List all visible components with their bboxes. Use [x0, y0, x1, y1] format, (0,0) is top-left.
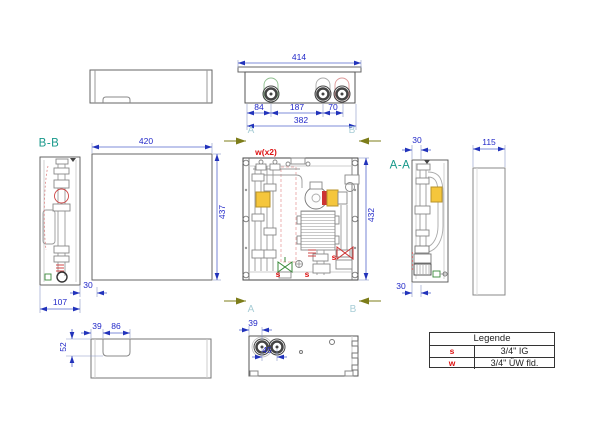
section-label-bb: B-B [39, 138, 60, 150]
dim-bb-back: 30 [83, 281, 92, 290]
dim-aa-bottom: 30 [396, 282, 405, 291]
dim-center-height: 432 [367, 208, 376, 222]
drawing-canvas: 414 84 187 70 382 A B A B 420 437 B-B 30… [0, 0, 600, 424]
port-label-s-2: s [305, 270, 310, 279]
dim-top-left: 84 [254, 103, 263, 112]
dim-bb-depth: 107 [53, 298, 67, 307]
section-aa-view [412, 160, 448, 282]
dim-base-offset: 39 [248, 319, 257, 328]
dim-top-right: 70 [328, 103, 337, 112]
dim-cover-depth: 52 [59, 342, 68, 351]
front-cover-view [92, 154, 212, 280]
unit-front-view [243, 158, 359, 280]
cut-letter-b-top: B [349, 126, 356, 136]
cut-letter-b-bottom: B [350, 305, 357, 315]
dim-aa-top: 30 [412, 136, 421, 145]
legend-table: Legende s 3/4" IG w 3/4" ÜW fld. [429, 332, 555, 368]
yellow-valve-icon [431, 187, 442, 202]
dim-top-overall: 414 [292, 53, 306, 62]
dim-base-pitch: 45 [262, 346, 271, 355]
legend-key-s: s [430, 346, 475, 357]
yellow-valve-icon [256, 192, 270, 207]
section-bb-view [40, 157, 80, 285]
port-label-s-3: s [332, 253, 337, 262]
legend-value-s: 3/4" IG [475, 346, 554, 357]
port-label-w: w(x2) [255, 148, 277, 157]
dim-cover-notch: 86 [111, 322, 120, 331]
side-cover-view [473, 168, 505, 295]
cut-letter-a-top: A [248, 126, 255, 136]
dim-top-span: 382 [294, 116, 308, 125]
dim-top-mid: 187 [290, 103, 304, 112]
dim-cover-offset: 39 [92, 322, 101, 331]
base-bottom-view [249, 336, 358, 376]
cover-top-view [90, 70, 212, 103]
legend-row-w: w 3/4" ÜW fld. [430, 358, 554, 369]
section-label-aa: A-A [390, 160, 411, 172]
unit-top-view [238, 67, 361, 103]
legend-key-w: w [430, 358, 475, 369]
legend-title: Legende [430, 333, 554, 346]
dim-side-depth: 115 [482, 138, 496, 147]
port-label-s-1: s [276, 270, 281, 279]
legend-value-w: 3/4" ÜW fld. [475, 358, 554, 369]
cover-bottom-view [91, 339, 211, 378]
cut-letter-a-bottom: A [248, 305, 255, 315]
dim-front-width: 420 [139, 137, 153, 146]
dim-front-height: 437 [218, 205, 227, 219]
legend-row-s: s 3/4" IG [430, 346, 554, 358]
